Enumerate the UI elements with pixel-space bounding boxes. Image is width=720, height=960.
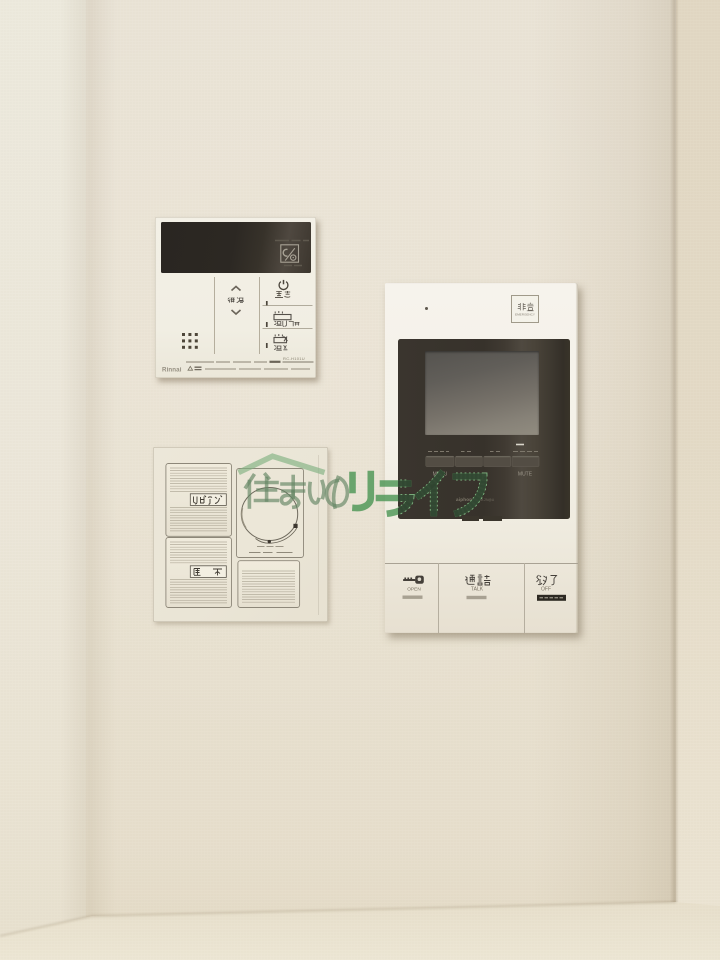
svg-text:aiphone: aiphone: [456, 497, 475, 502]
svg-text:EMERGENCY: EMERGENCY: [516, 313, 536, 317]
svg-text:MENU: MENU: [433, 471, 448, 477]
svg-text:OFF: OFF: [541, 586, 551, 592]
svg-text:Rinnai: Rinnai: [162, 367, 182, 374]
svg-text:OPEN: OPEN: [407, 586, 421, 592]
svg-text:1SM-2N@A: 1SM-2N@A: [476, 498, 495, 502]
svg-text:TALK: TALK: [471, 586, 484, 592]
svg-text:MUTE: MUTE: [518, 471, 533, 477]
